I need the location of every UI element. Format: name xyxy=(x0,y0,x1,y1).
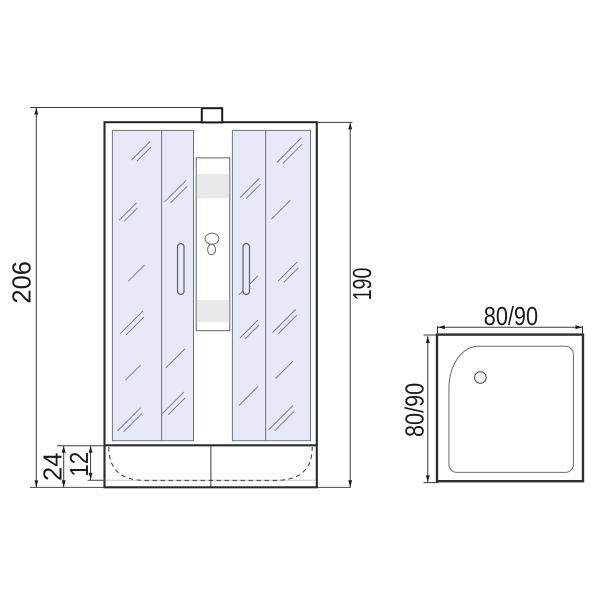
svg-text:206: 206 xyxy=(8,261,36,304)
svg-text:80/90: 80/90 xyxy=(484,303,538,331)
svg-text:24: 24 xyxy=(40,453,68,481)
svg-text:12: 12 xyxy=(66,452,95,477)
svg-text:190: 190 xyxy=(348,268,377,301)
svg-text:80/90: 80/90 xyxy=(402,383,430,437)
